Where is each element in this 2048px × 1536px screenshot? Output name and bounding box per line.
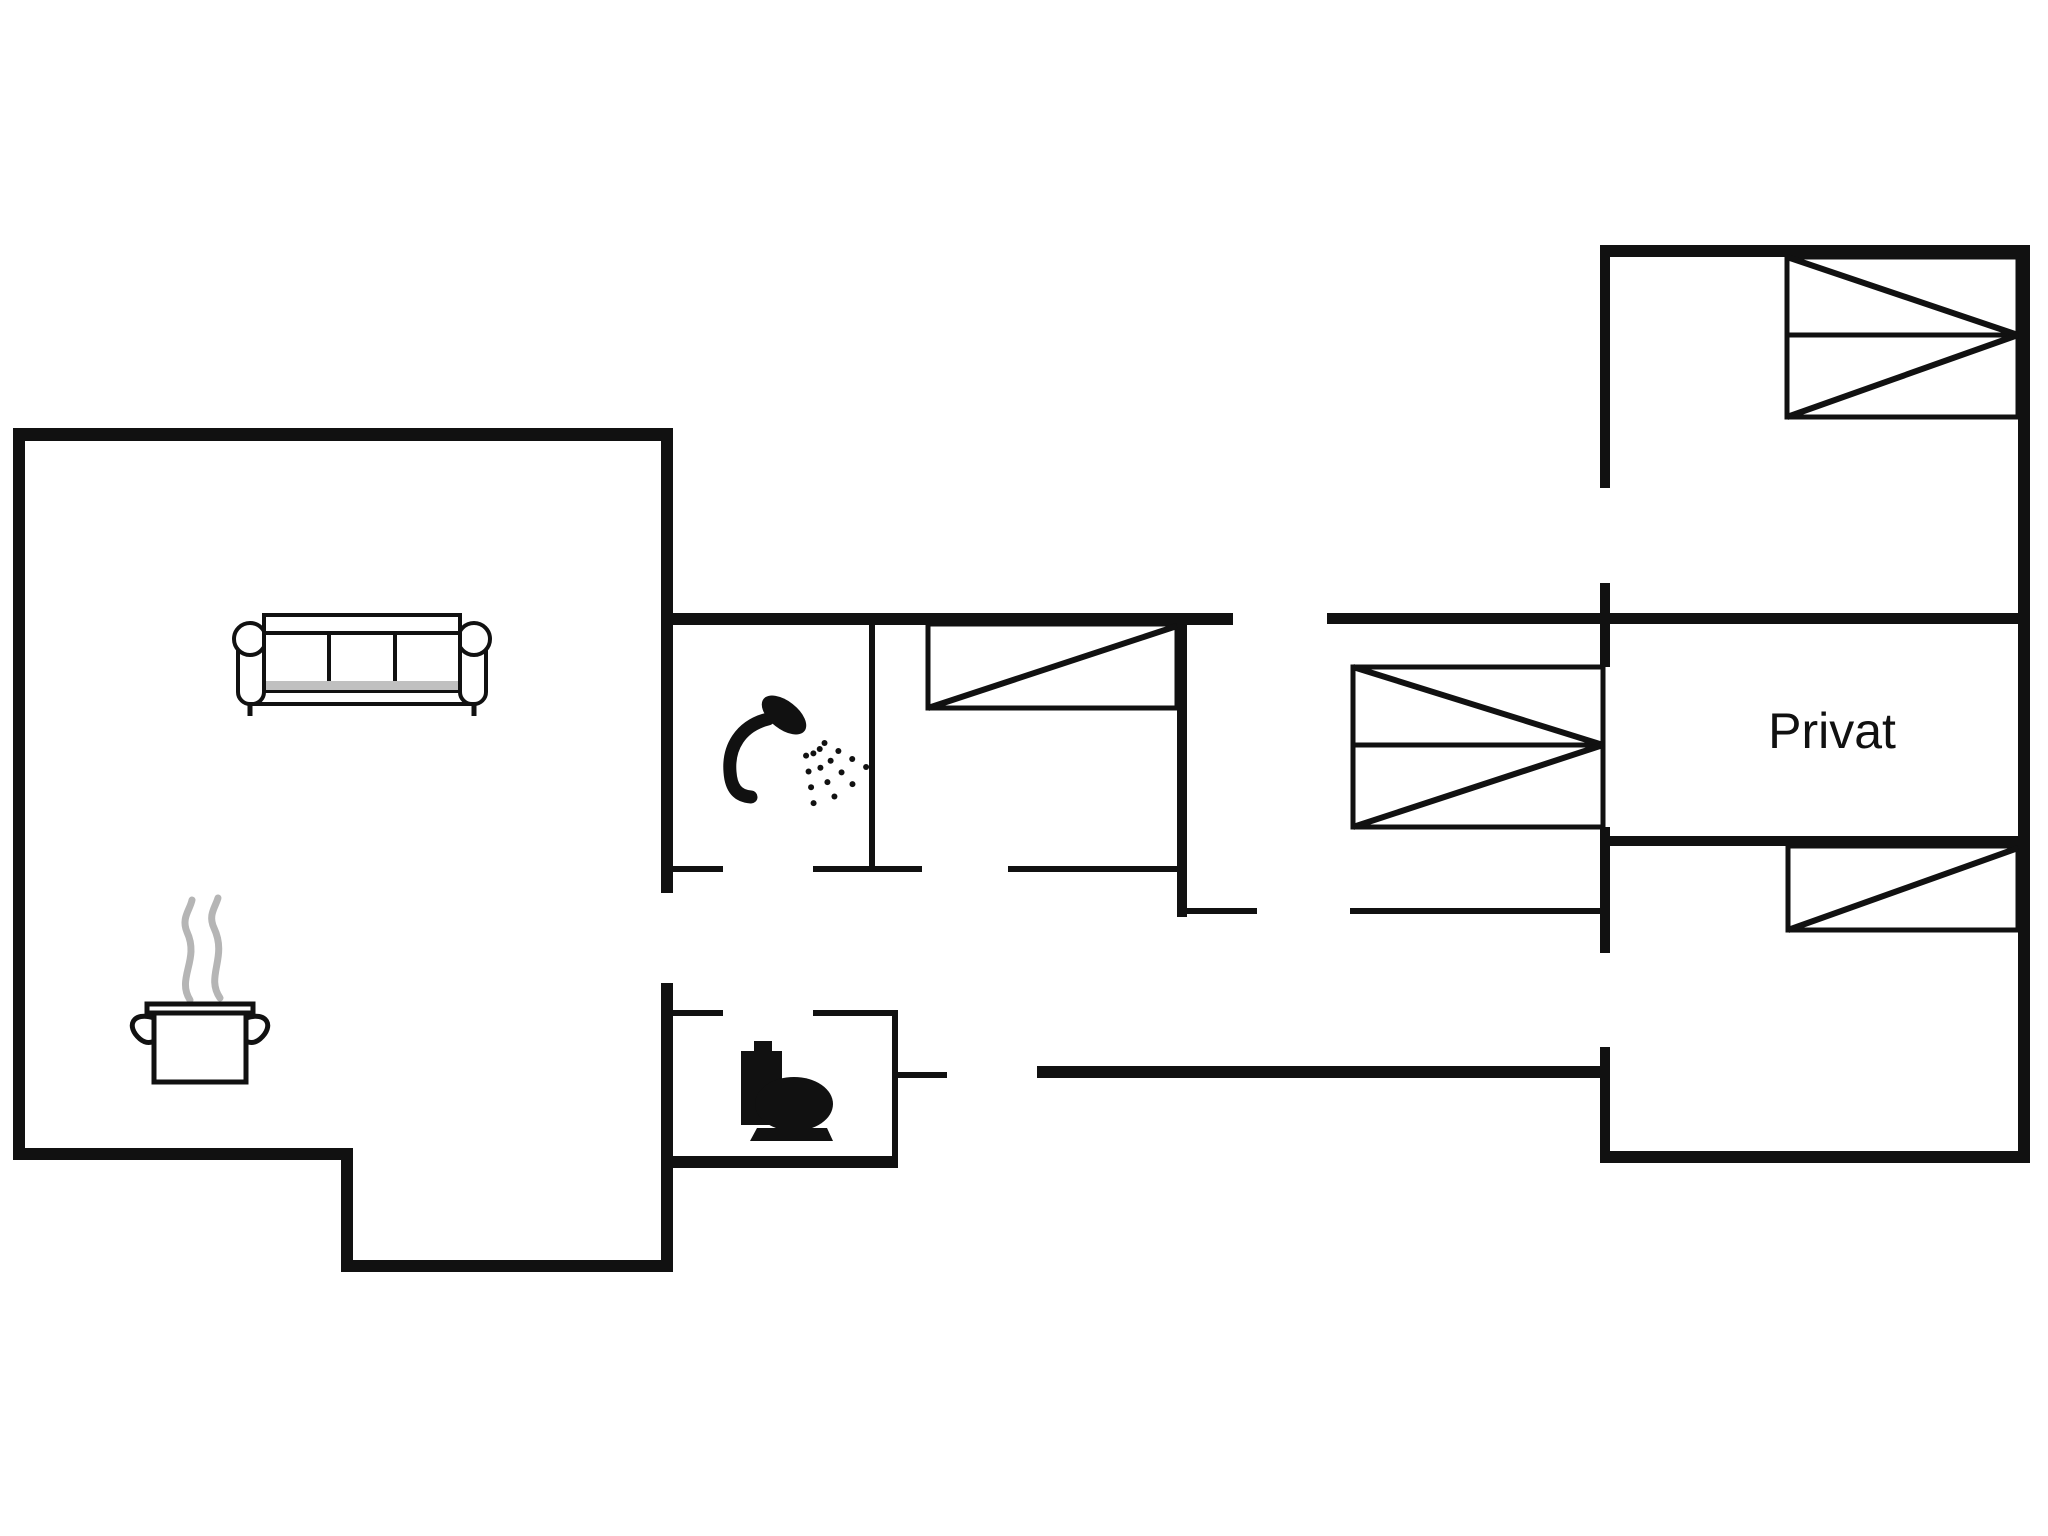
bed-double-middle-right bbox=[1353, 667, 1603, 827]
wall-segment bbox=[1600, 245, 1610, 488]
toilet-bowl bbox=[755, 1077, 833, 1131]
sofa-armrest-curl bbox=[234, 623, 266, 655]
steam-icon bbox=[185, 900, 192, 1000]
sofa-icon bbox=[234, 615, 490, 716]
wall-segment bbox=[892, 1010, 898, 1168]
sofa-armrest-curl bbox=[458, 623, 490, 655]
wall-segment bbox=[13, 428, 673, 441]
shower-spray-dot bbox=[863, 764, 869, 770]
shower-spray-dot bbox=[824, 779, 830, 785]
shower-icon bbox=[730, 688, 869, 806]
shower-spray-dot bbox=[810, 750, 816, 756]
bed-single-middle bbox=[928, 624, 1177, 708]
wall-segment bbox=[1008, 866, 1183, 872]
wall-segment bbox=[892, 1072, 947, 1078]
cooking-pot-icon bbox=[132, 898, 267, 1082]
wall-segment bbox=[1600, 1047, 1610, 1163]
wall-segment bbox=[13, 428, 25, 1160]
shower-spray-dot bbox=[817, 765, 823, 771]
pot-rim bbox=[147, 1004, 253, 1013]
wall-segment bbox=[1600, 1151, 2030, 1163]
shower-spray-dot bbox=[839, 769, 845, 775]
wall-segment bbox=[813, 866, 922, 872]
wall-segment bbox=[869, 613, 875, 872]
room-label-privat: Privat bbox=[1768, 703, 1896, 759]
wall-segment bbox=[661, 866, 723, 872]
shower-spray-dot bbox=[835, 748, 841, 754]
wall-segment bbox=[1327, 613, 2030, 624]
shower-spray-dot bbox=[822, 740, 828, 746]
sofa-seat-strip bbox=[266, 681, 458, 690]
wall-segment bbox=[661, 983, 673, 1272]
shower-spray-dot bbox=[831, 794, 837, 800]
shower-arm bbox=[730, 719, 768, 797]
walls-layer bbox=[13, 245, 2030, 1272]
wall-segment bbox=[1350, 908, 1606, 914]
wall-segment bbox=[13, 1148, 353, 1160]
shower-spray-dot bbox=[806, 768, 812, 774]
sofa-backrest bbox=[264, 615, 460, 633]
shower-spray-dot bbox=[817, 746, 823, 752]
shower-spray-dot bbox=[803, 753, 809, 759]
beds-layer bbox=[928, 257, 2018, 930]
toilet-icon bbox=[741, 1041, 833, 1141]
wall-segment bbox=[813, 1010, 898, 1016]
shower-spray-dot bbox=[849, 756, 855, 762]
wall-segment bbox=[661, 1010, 723, 1016]
furniture-layer bbox=[132, 615, 869, 1141]
shower-spray-dot bbox=[828, 758, 834, 764]
wall-segment bbox=[1600, 583, 1610, 667]
wall-segment bbox=[661, 428, 673, 893]
wall-segment bbox=[1037, 1066, 1606, 1078]
wall-segment bbox=[1177, 908, 1257, 914]
shower-spray-dot bbox=[811, 800, 817, 806]
wall-segment bbox=[341, 1148, 353, 1272]
bed-single-bottom-right bbox=[1788, 846, 2018, 930]
steam-icon bbox=[212, 898, 220, 998]
wall-segment bbox=[661, 1156, 898, 1168]
floor-plan-page: Privat bbox=[0, 0, 2048, 1536]
pot-body bbox=[154, 1012, 246, 1082]
floor-plan: Privat bbox=[0, 0, 2048, 1536]
shower-spray-dot bbox=[808, 784, 814, 790]
bed-double-top-right bbox=[1787, 257, 2018, 417]
wall-segment bbox=[341, 1260, 673, 1272]
toilet-base bbox=[750, 1128, 833, 1141]
shower-spray-dot bbox=[849, 781, 855, 787]
